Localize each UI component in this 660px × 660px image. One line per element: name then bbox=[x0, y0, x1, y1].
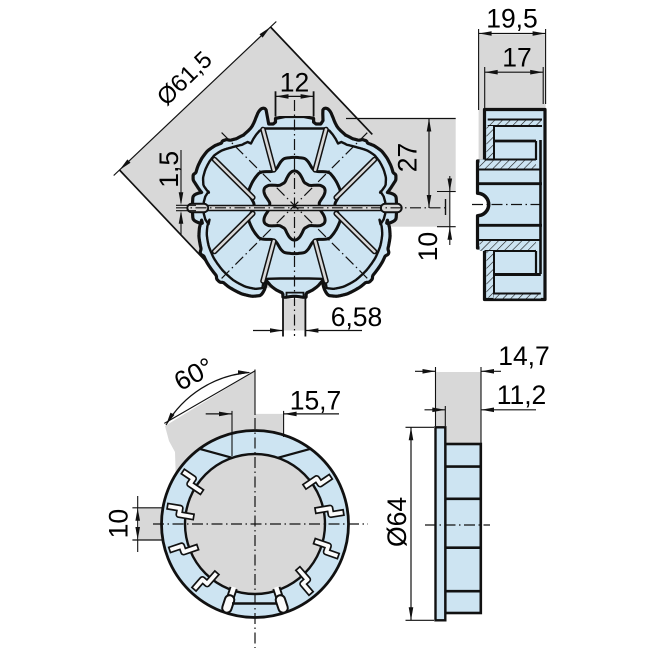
svg-text:6,58: 6,58 bbox=[331, 302, 383, 332]
svg-text:27: 27 bbox=[393, 143, 423, 172]
svg-text:19,5: 19,5 bbox=[486, 4, 538, 34]
svg-text:11,2: 11,2 bbox=[497, 380, 547, 410]
svg-text:10: 10 bbox=[104, 509, 134, 538]
svg-text:10: 10 bbox=[413, 232, 443, 261]
svg-text:17: 17 bbox=[502, 43, 531, 73]
svg-text:14,7: 14,7 bbox=[498, 341, 550, 371]
svg-text:12: 12 bbox=[280, 68, 309, 98]
svg-text:15,7: 15,7 bbox=[290, 386, 342, 416]
svg-text:Ø64: Ø64 bbox=[382, 497, 412, 547]
svg-text:1,5: 1,5 bbox=[154, 151, 184, 188]
